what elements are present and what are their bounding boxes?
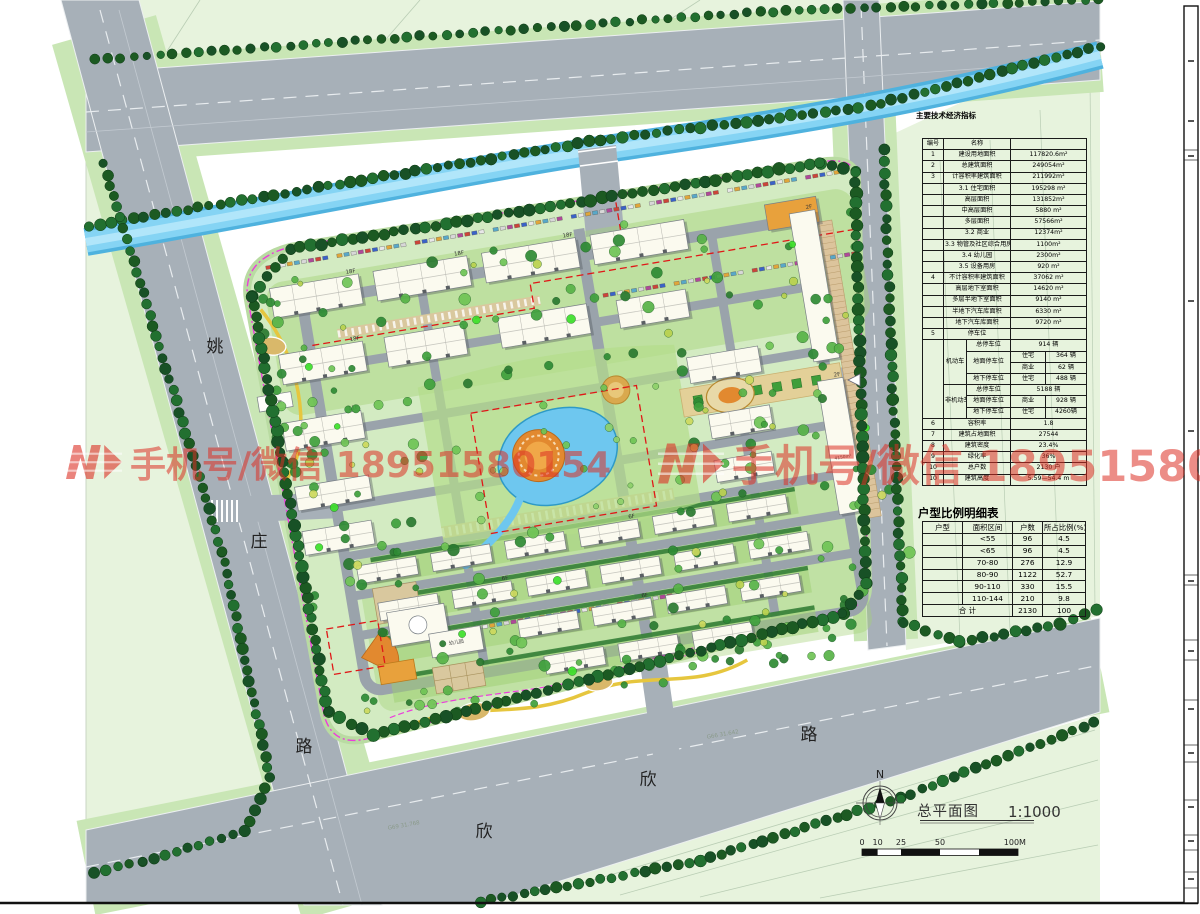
- table-cell: 211992m²: [1011, 172, 1087, 183]
- table-cell: [923, 206, 944, 217]
- table-cell: 高层面积: [944, 194, 1011, 205]
- table-cell: 名称: [944, 139, 1011, 150]
- map-label: 50: [935, 838, 945, 847]
- map-label: 0: [859, 838, 864, 847]
- table-cell: 10: [923, 463, 944, 474]
- table-cell: 合 计: [923, 605, 1013, 617]
- unit-mix-table: 户型面积区间户数所占比例(%)<55964.5<65964.570-802761…: [922, 521, 1086, 617]
- svg-text:6F: 6F: [501, 575, 509, 582]
- table-cell: 面积区间: [963, 522, 1013, 534]
- table-cell: 62 辆: [1046, 362, 1087, 373]
- table-cell: 364 辆: [1046, 351, 1087, 362]
- table-cell: 96: [1013, 545, 1043, 557]
- table-cell: 住宅: [1011, 351, 1046, 362]
- table-cell: [1011, 329, 1087, 340]
- table-cell: 编号: [923, 139, 944, 150]
- unit-mix-table-title: 户型比例明细表: [918, 505, 999, 521]
- table-cell: 110-144: [963, 593, 1013, 605]
- table-cell: [923, 581, 963, 593]
- map-label: 100M: [1004, 838, 1026, 847]
- map-label: 欣: [476, 822, 493, 842]
- table-cell: 5.59—54.4 m: [1011, 474, 1087, 485]
- table-cell: 半地下汽车库面积: [944, 306, 1011, 317]
- table-cell: 多层半地下室面积: [944, 295, 1011, 306]
- table-cell: 2130 户: [1011, 463, 1087, 474]
- table-cell: 2300m²: [1011, 250, 1087, 261]
- table-cell: [923, 262, 944, 273]
- table-cell: [923, 545, 963, 557]
- map-label: 路: [296, 737, 313, 757]
- table-cell: 195298 m²: [1011, 183, 1087, 194]
- table-cell: <65: [963, 545, 1013, 557]
- table-cell: [923, 318, 944, 329]
- svg-text:6F: 6F: [641, 592, 649, 599]
- table-cell: 停车位: [944, 329, 1011, 340]
- table-cell: 3.5 设备用房: [944, 262, 1011, 273]
- table-cell: 5188 辆: [1011, 385, 1087, 396]
- table-cell: [923, 557, 963, 569]
- map-label: 欣: [640, 770, 657, 790]
- table-cell: [923, 593, 963, 605]
- table-cell: [923, 306, 944, 317]
- table-cell: 37062 m²: [1011, 273, 1087, 284]
- table-cell: 914 辆: [1011, 340, 1087, 351]
- table-cell: 2: [923, 161, 944, 172]
- table-cell: 70-80: [963, 557, 1013, 569]
- table-cell: 330: [1013, 581, 1043, 593]
- table-cell: 90-110: [963, 581, 1013, 593]
- map-label: 25: [896, 838, 906, 847]
- table-cell: 住宅: [1011, 407, 1046, 418]
- table-cell: 5: [923, 329, 944, 340]
- map-label: 10: [873, 838, 883, 847]
- table-cell: 15.5: [1043, 581, 1086, 593]
- table-cell: 9: [923, 452, 944, 463]
- table-cell: 100: [1043, 605, 1086, 617]
- table-cell: 地下汽车库面积: [944, 318, 1011, 329]
- table-cell: <55: [963, 533, 1013, 545]
- table-cell: 1.8: [1011, 418, 1087, 429]
- table-cell: 非机动车: [944, 385, 967, 419]
- map-label: 姚: [207, 337, 224, 357]
- map-label: 路: [801, 725, 818, 745]
- main-indicators-table-title: 主要技术经济指标: [916, 110, 976, 121]
- table-cell: 6: [923, 418, 944, 429]
- map-label: 总平面图: [917, 803, 979, 820]
- table-cell: 地面停车位: [967, 351, 1011, 373]
- table-cell: 所占比例(%): [1043, 522, 1086, 534]
- table-cell: 4260辆: [1046, 407, 1087, 418]
- table-cell: 机动车: [944, 340, 967, 385]
- table-cell: 户型: [923, 522, 963, 534]
- table-cell: 10: [923, 474, 944, 485]
- table-cell: 地下停车位: [967, 373, 1011, 384]
- table-cell: [923, 340, 944, 418]
- table-cell: [923, 228, 944, 239]
- table-cell: 3: [923, 172, 944, 183]
- table-cell: 928 辆: [1046, 396, 1087, 407]
- table-cell: 绿化率: [944, 452, 1011, 463]
- table-cell: 建设用地面积: [944, 150, 1011, 161]
- table-cell: 4.5: [1043, 545, 1086, 557]
- table-cell: 不计容积率建筑面积: [944, 273, 1011, 284]
- table-cell: 1122: [1013, 569, 1043, 581]
- table-cell: 6330 m²: [1011, 306, 1087, 317]
- table-cell: 地面停车位: [967, 396, 1011, 407]
- table-cell: 总停车位: [967, 385, 1011, 396]
- table-cell: 多层面积: [944, 217, 1011, 228]
- table-cell: [923, 295, 944, 306]
- table-cell: [923, 239, 944, 250]
- title-block-strip: [1184, 6, 1198, 903]
- table-cell: [923, 569, 963, 581]
- table-cell: 9720 m²: [1011, 318, 1087, 329]
- svg-text:6F: 6F: [628, 514, 636, 521]
- table-cell: 1: [923, 150, 944, 161]
- table-cell: 12374m²: [1011, 228, 1087, 239]
- svg-text:2F: 2F: [833, 372, 841, 379]
- table-cell: 9.8: [1043, 593, 1086, 605]
- table-cell: 3.4 幼儿园: [944, 250, 1011, 261]
- table-cell: [923, 183, 944, 194]
- table-cell: 488 辆: [1046, 373, 1087, 384]
- table-cell: 9140 m²: [1011, 295, 1087, 306]
- table-cell: 2130: [1013, 605, 1043, 617]
- table-cell: 1100m²: [1011, 239, 1087, 250]
- table-cell: 117820.6m²: [1011, 150, 1087, 161]
- table-cell: 36%: [1011, 452, 1087, 463]
- table-cell: 5880 m²: [1011, 206, 1087, 217]
- table-cell: 建筑高度: [944, 474, 1011, 485]
- table-cell: 57566m²: [1011, 217, 1087, 228]
- table-cell: 总户数: [944, 463, 1011, 474]
- table-cell: [923, 194, 944, 205]
- table-cell: 高层地下室面积: [944, 284, 1011, 295]
- table-cell: 总停车位: [967, 340, 1011, 351]
- svg-text:2F: 2F: [805, 204, 813, 211]
- table-cell: [923, 250, 944, 261]
- table-cell: 建筑占地面积: [944, 429, 1011, 440]
- table-cell: 131852m²: [1011, 194, 1087, 205]
- table-cell: 3.1 住宅面积: [944, 183, 1011, 194]
- table-cell: 14620 m²: [1011, 284, 1087, 295]
- table-cell: 23.4%: [1011, 441, 1087, 452]
- table-cell: 52.7: [1043, 569, 1086, 581]
- table-cell: 4.5: [1043, 533, 1086, 545]
- map-label: N: [876, 768, 884, 781]
- table-cell: 249054m²: [1011, 161, 1087, 172]
- table-cell: 7: [923, 429, 944, 440]
- table-cell: 96: [1013, 533, 1043, 545]
- table-cell: [923, 533, 963, 545]
- scale-bar: [862, 849, 1018, 856]
- table-cell: 地下停车位: [967, 407, 1011, 418]
- table-cell: [923, 284, 944, 295]
- table-cell: 总建筑面积: [944, 161, 1011, 172]
- table-cell: 27544: [1011, 429, 1087, 440]
- site-plan-page: { "drawing": { "title": "总平面图", "scale":…: [0, 0, 1200, 914]
- table-cell: 4: [923, 273, 944, 284]
- table-cell: 中高层面积: [944, 206, 1011, 217]
- table-cell: 商业: [1011, 396, 1046, 407]
- table-cell: 3.2 商业: [944, 228, 1011, 239]
- table-cell: [923, 217, 944, 228]
- table-cell: 80-90: [963, 569, 1013, 581]
- table-cell: 计容积率建筑面积: [944, 172, 1011, 183]
- table-cell: 210: [1013, 593, 1043, 605]
- table-cell: 户数: [1013, 522, 1043, 534]
- table-cell: 商业: [1011, 362, 1046, 373]
- table-cell: 920 m²: [1011, 262, 1087, 273]
- main-indicators-table: 编号名称1建设用地面积117820.6m²2总建筑面积249054m²3计容积率…: [922, 138, 1087, 486]
- map-label: 1:1000: [1008, 803, 1061, 821]
- table-cell: [1011, 139, 1087, 150]
- table-cell: 住宅: [1011, 373, 1046, 384]
- map-label: 庄: [251, 532, 268, 552]
- table-cell: 276: [1013, 557, 1043, 569]
- table-cell: 3.3 物管及社区综合用房: [944, 239, 1011, 250]
- table-cell: 12.9: [1043, 557, 1086, 569]
- table-cell: 8: [923, 441, 944, 452]
- table-cell: 建筑密度: [944, 441, 1011, 452]
- table-cell: 容积率: [944, 418, 1011, 429]
